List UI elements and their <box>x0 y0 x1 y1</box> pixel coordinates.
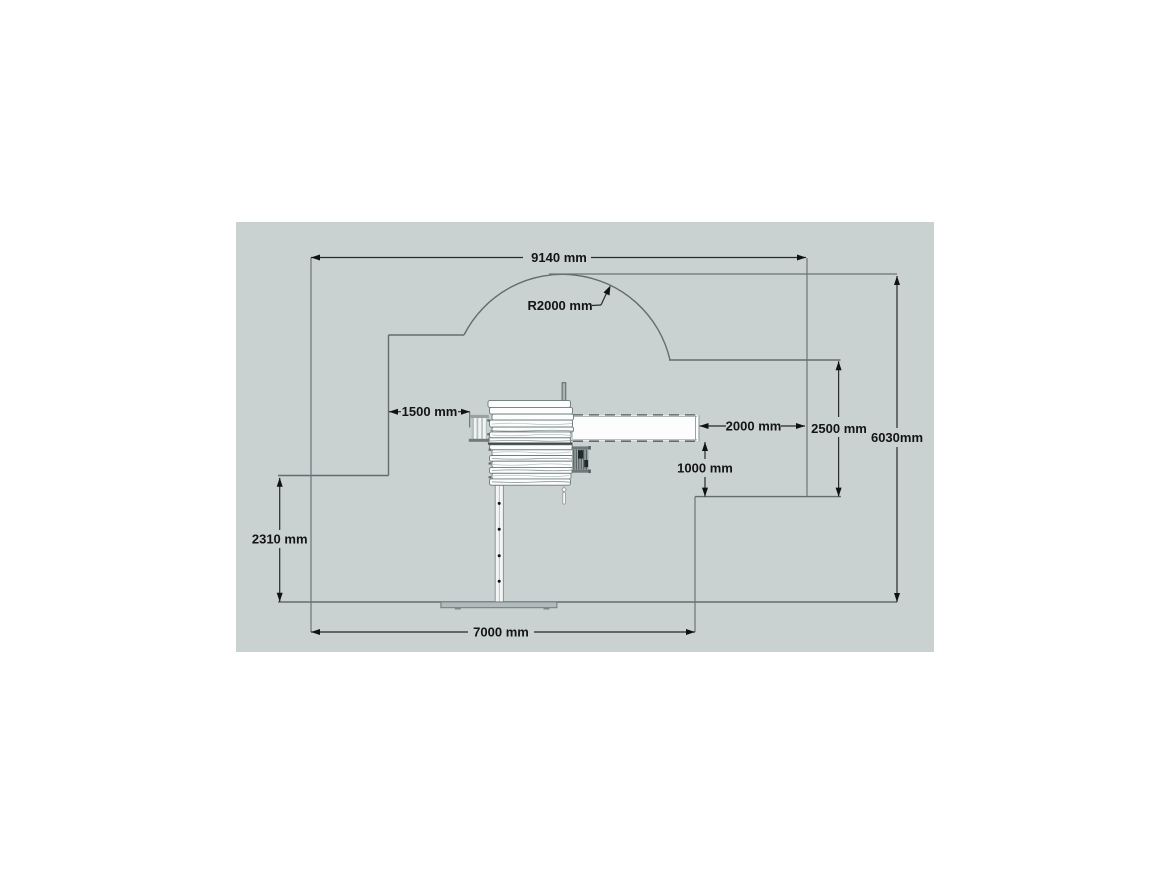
svg-text:9140 mm: 9140 mm <box>531 250 587 265</box>
svg-text:2000 mm: 2000 mm <box>726 419 782 434</box>
svg-text:1500 mm: 1500 mm <box>402 404 458 419</box>
svg-text:2310 mm: 2310 mm <box>252 532 308 547</box>
svg-text:2500 mm: 2500 mm <box>811 421 867 436</box>
svg-text:6030mm: 6030mm <box>871 430 923 445</box>
svg-text:R2000 mm: R2000 mm <box>527 298 592 313</box>
svg-text:1000 mm: 1000 mm <box>677 461 733 476</box>
svg-text:7000 mm: 7000 mm <box>473 625 529 640</box>
